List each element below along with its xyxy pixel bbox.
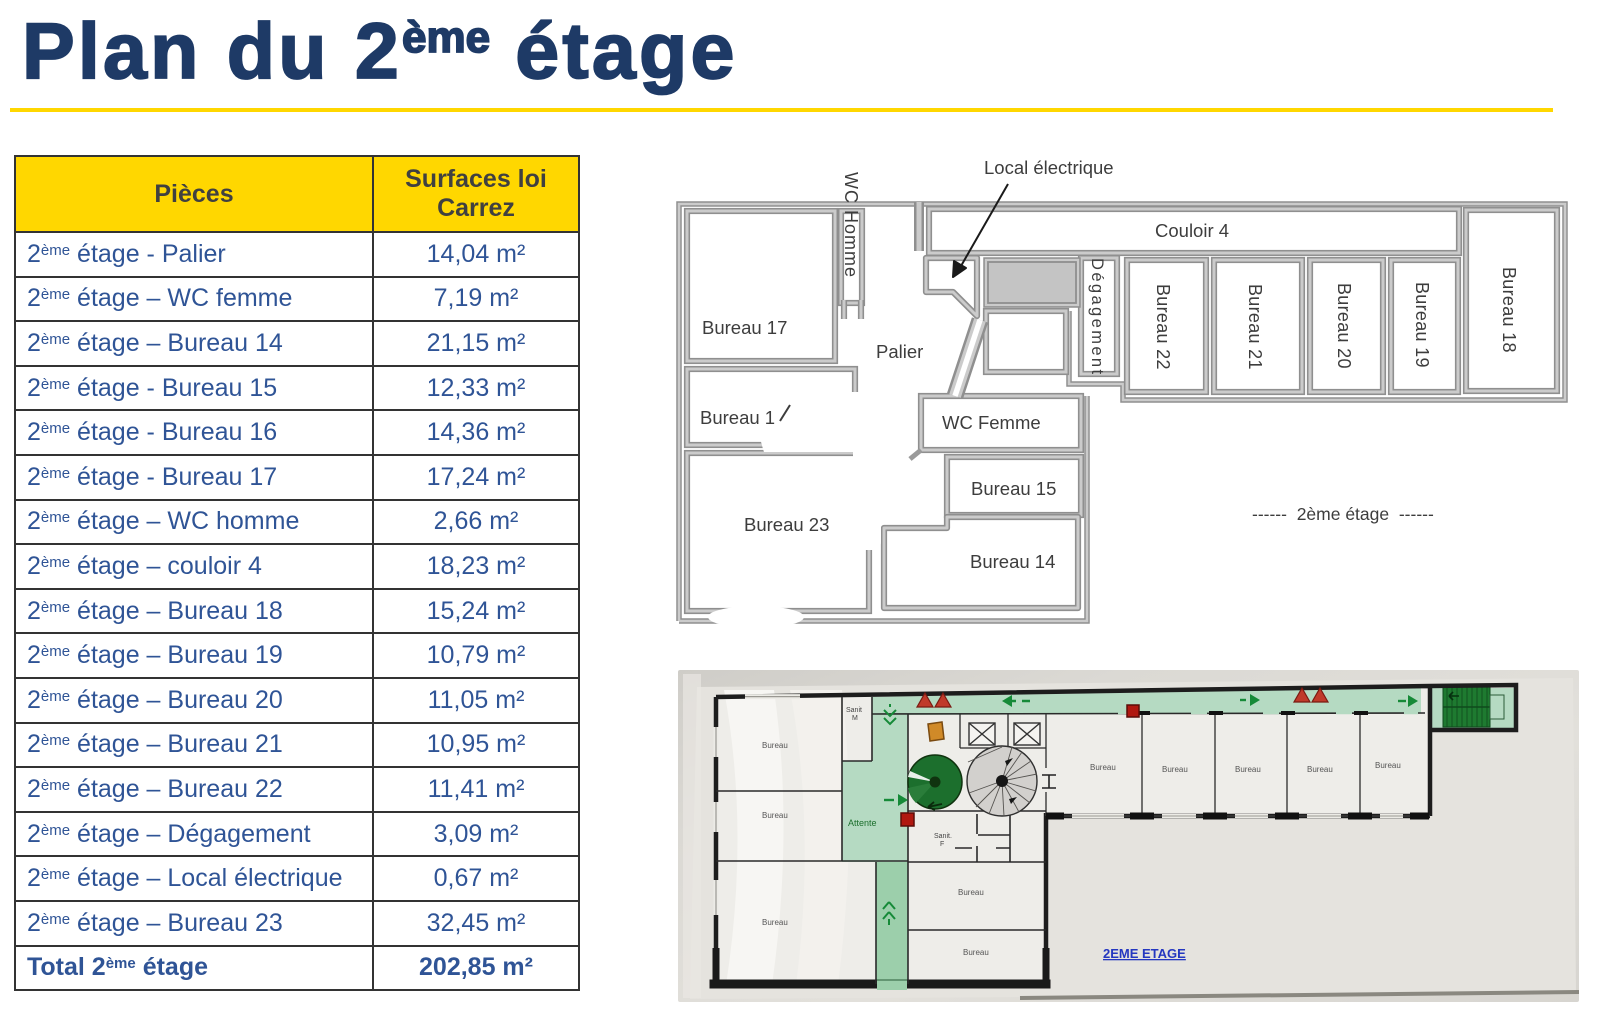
svg-text:Bureau: Bureau [762,918,788,927]
svg-text:Bureau: Bureau [762,741,788,750]
svg-text:M: M [852,715,858,722]
svg-text:Bureau: Bureau [963,948,989,957]
svg-text:Bureau: Bureau [1375,761,1401,770]
svg-text:F: F [940,841,944,848]
svg-text:Bureau: Bureau [1162,765,1188,774]
svg-text:Bureau: Bureau [762,811,788,820]
svg-text:Bureau: Bureau [1235,765,1261,774]
svg-text:2EME ETAGE: 2EME ETAGE [1103,946,1186,961]
svg-text:Bureau: Bureau [1090,763,1116,772]
svg-text:Bureau: Bureau [1307,765,1333,774]
svg-text:Bureau: Bureau [958,888,984,897]
svg-text:Sanit: Sanit [846,707,862,714]
svg-text:Attente: Attente [848,818,877,828]
svg-text:Sanit.: Sanit. [934,833,952,840]
